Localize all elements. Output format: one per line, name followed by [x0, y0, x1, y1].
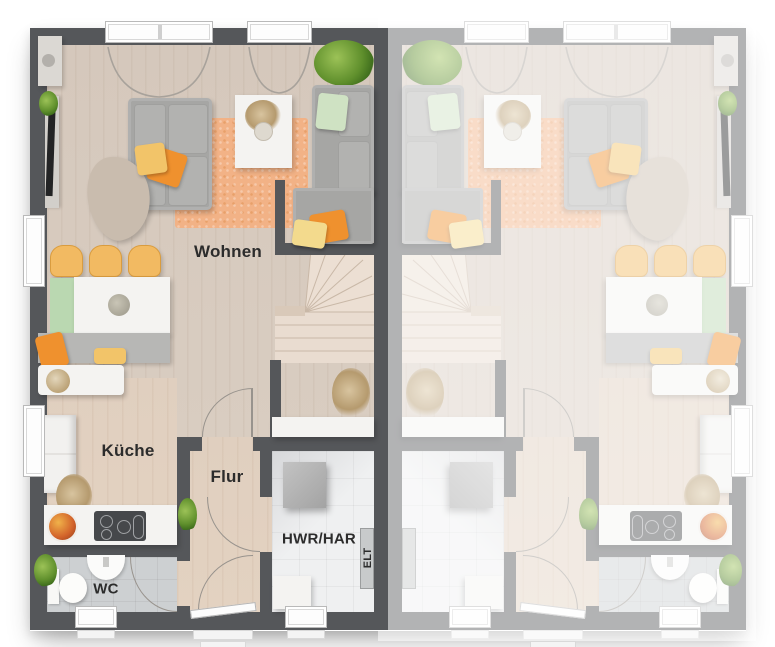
toilet-bowl	[59, 573, 87, 603]
utility-cabinet	[273, 576, 311, 609]
table-vase	[503, 122, 522, 141]
entry-step-1	[193, 630, 253, 640]
unit-right	[388, 28, 746, 631]
corner-fern-icon	[402, 40, 462, 86]
decor-bowl	[46, 369, 70, 393]
entry-step-2	[530, 641, 576, 647]
window-left-kitchen	[23, 405, 45, 477]
label-wc: WC	[93, 581, 118, 598]
window-wc-sill	[77, 630, 115, 639]
dining-chair	[693, 245, 726, 277]
hall-plant-icon	[579, 498, 598, 532]
washing-machine	[450, 462, 493, 508]
pillow-pale-yellow	[448, 219, 484, 249]
pillow-yellow	[608, 142, 642, 176]
sideboard	[272, 417, 374, 437]
label-elt: ELT	[362, 548, 374, 569]
elt-panel	[402, 528, 416, 589]
wall-hwr-upper	[504, 437, 516, 497]
curtain-swag-icon	[247, 45, 312, 100]
wc-plant-icon	[719, 554, 742, 587]
utility-cabinet	[465, 576, 503, 609]
plant-icon	[39, 91, 58, 116]
table-vase	[254, 122, 273, 141]
entry-step-2	[200, 641, 246, 647]
fruit-bowl	[700, 513, 727, 540]
sink-faucet	[667, 557, 673, 567]
dining-bench-green	[699, 278, 726, 334]
label-hwr: HWR/HAR	[282, 531, 356, 548]
window-top-single	[247, 21, 312, 43]
dining-chair	[654, 245, 687, 277]
door-leaf-living	[251, 389, 253, 437]
wall-party	[374, 28, 388, 630]
pillow-yellow	[134, 142, 168, 176]
dining-chair	[615, 245, 648, 277]
dining-chair	[89, 245, 122, 277]
window-wc-sill	[661, 630, 699, 639]
label-wohnen: Wohnen	[194, 242, 262, 262]
pillow-green	[315, 93, 349, 132]
building: Wohnen Küche Flur HWR/HAR WC ELT	[30, 28, 746, 631]
dining-chair	[50, 245, 83, 277]
pillow-pale-yellow	[291, 219, 327, 249]
sideboard	[402, 417, 504, 437]
washing-machine	[283, 462, 326, 508]
cabinet-decor	[42, 54, 55, 67]
wall-hwr-lower	[504, 552, 516, 612]
window-left-dining	[23, 215, 45, 287]
window-wc	[75, 606, 117, 628]
window-top-single	[464, 21, 529, 43]
label-kueche: Küche	[102, 441, 155, 461]
wc-plant-icon	[34, 554, 57, 587]
window-hwr	[449, 606, 491, 628]
decor-bowl	[706, 369, 730, 393]
entry-step-1	[523, 630, 583, 640]
dried-branches-icon	[406, 368, 444, 418]
cooktop	[94, 511, 146, 541]
wall-wc-stub	[177, 606, 190, 630]
curtain-swag-icon	[105, 45, 213, 103]
staircase	[275, 250, 374, 363]
curtain-swag-icon	[464, 45, 529, 100]
cooktop	[630, 511, 682, 541]
door-leaf-living	[523, 389, 525, 437]
table-centerpiece	[108, 294, 130, 316]
window-hwr-sill	[287, 630, 325, 639]
wall-party	[388, 28, 402, 630]
staircase	[402, 250, 501, 363]
sink-faucet	[103, 557, 109, 567]
pillow-green	[427, 93, 461, 132]
window-top-wide	[105, 21, 213, 43]
wall-wc-stub	[586, 606, 599, 630]
wall-hwr-lower	[260, 552, 272, 612]
hall-plant-icon	[178, 498, 197, 532]
window-top-wide	[563, 21, 671, 43]
table-centerpiece	[646, 294, 668, 316]
floor-plan: Wohnen Küche Flur HWR/HAR WC ELT	[0, 0, 775, 647]
label-flur: Flur	[211, 467, 244, 487]
fruit-bowl	[49, 513, 76, 540]
curtain-swag-icon	[563, 45, 671, 103]
plant-icon	[718, 91, 737, 116]
dining-chair	[128, 245, 161, 277]
unit-left: Wohnen Küche Flur HWR/HAR WC ELT	[30, 28, 388, 631]
toilet-bowl	[689, 573, 717, 603]
bench-pillow-yellow	[94, 348, 126, 364]
wall-hwr-upper	[260, 437, 272, 497]
window-left-dining	[731, 215, 753, 287]
bench-pillow-yellow	[650, 348, 682, 364]
dried-branches-icon	[332, 368, 370, 418]
cabinet-decor	[721, 54, 734, 67]
dining-bench-green	[50, 278, 77, 334]
window-hwr	[285, 606, 327, 628]
window-wc	[659, 606, 701, 628]
window-hwr-sill	[451, 630, 489, 639]
corner-fern-icon	[314, 40, 374, 86]
window-left-kitchen	[731, 405, 753, 477]
